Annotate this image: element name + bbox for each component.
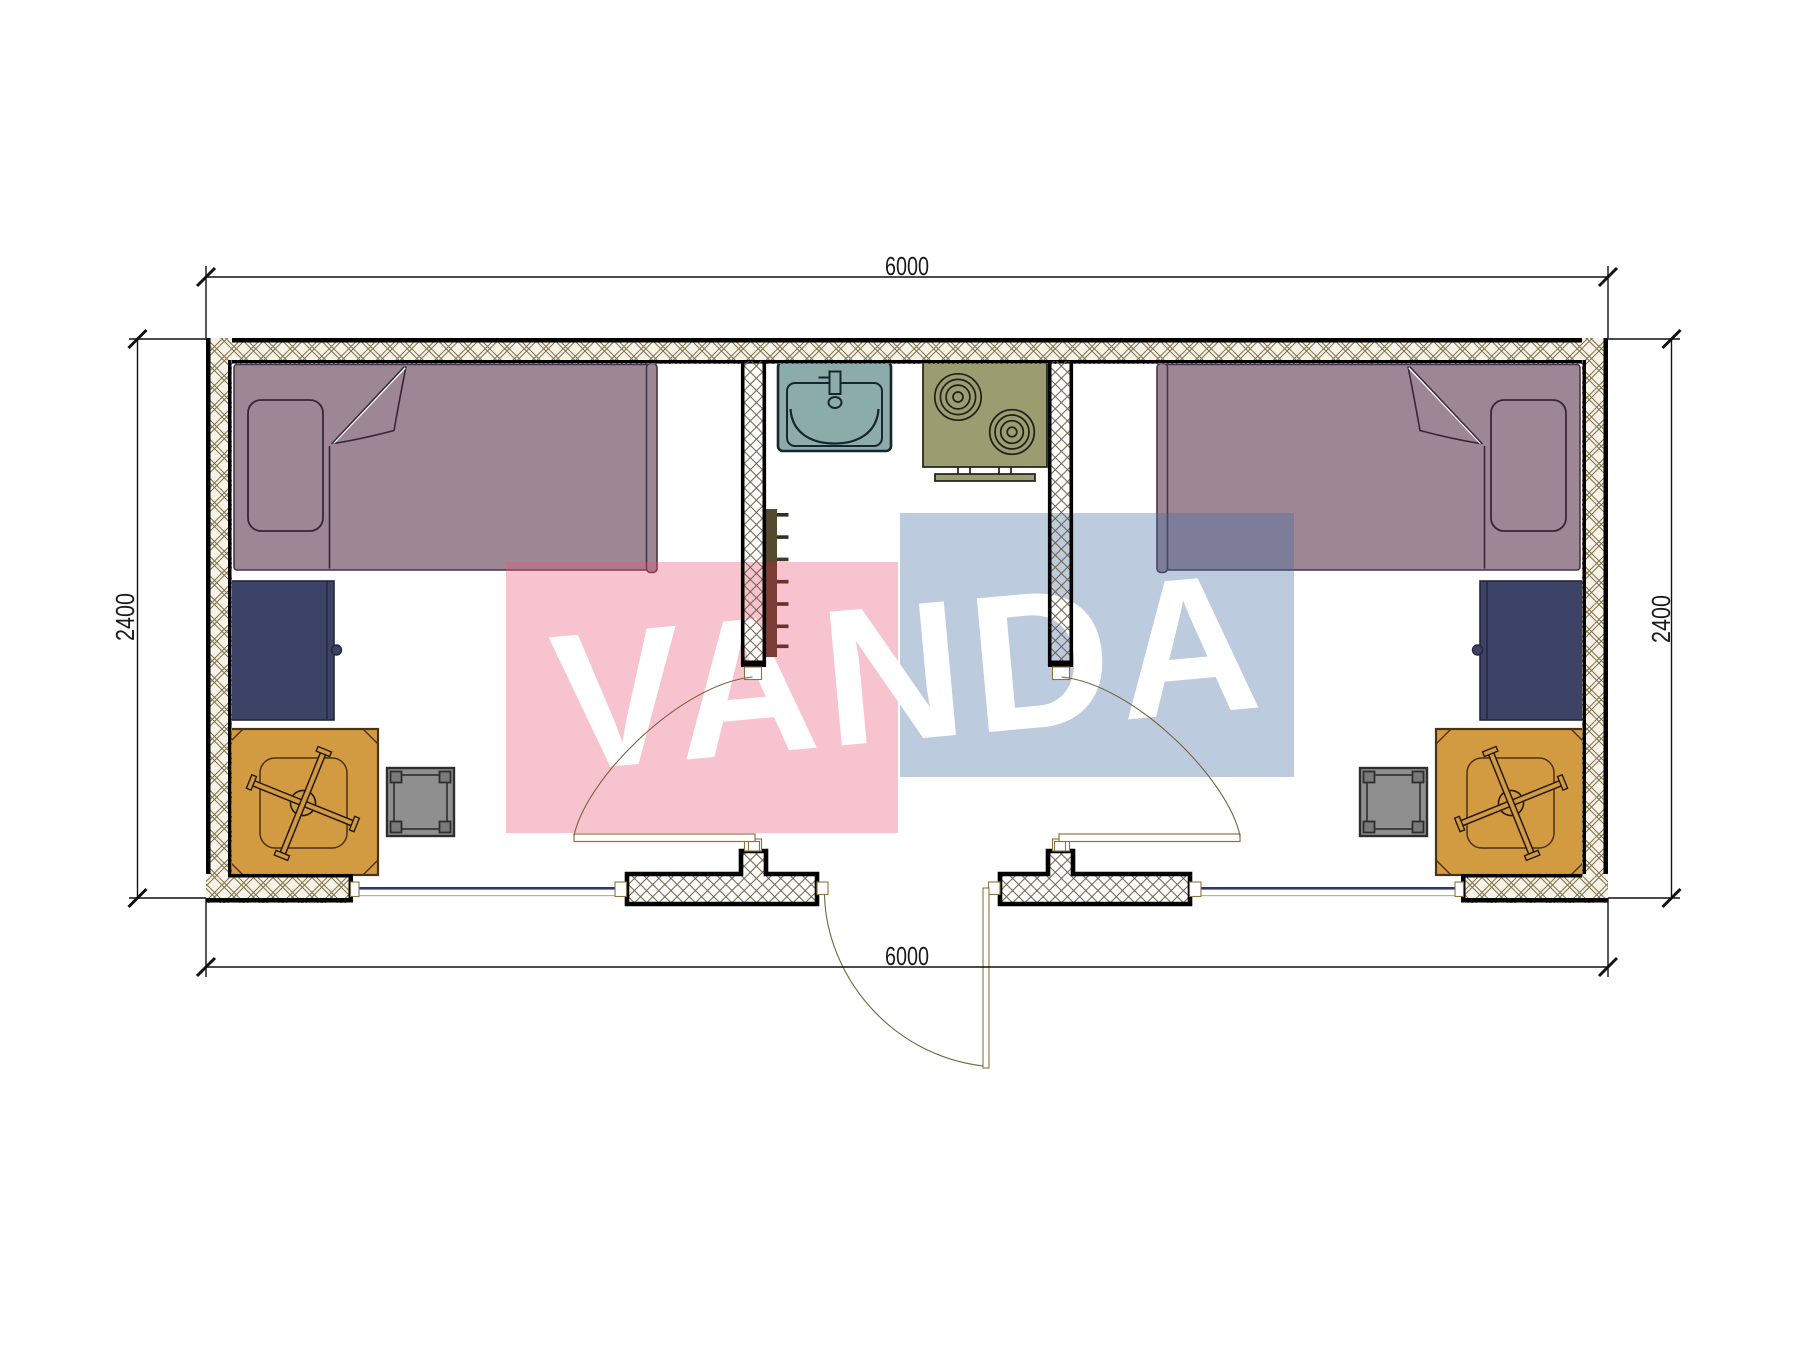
svg-text:6000: 6000 [885, 251, 929, 281]
svg-text:6000: 6000 [885, 941, 929, 971]
svg-text:2400: 2400 [1646, 595, 1676, 643]
svg-text:2400: 2400 [110, 593, 140, 641]
